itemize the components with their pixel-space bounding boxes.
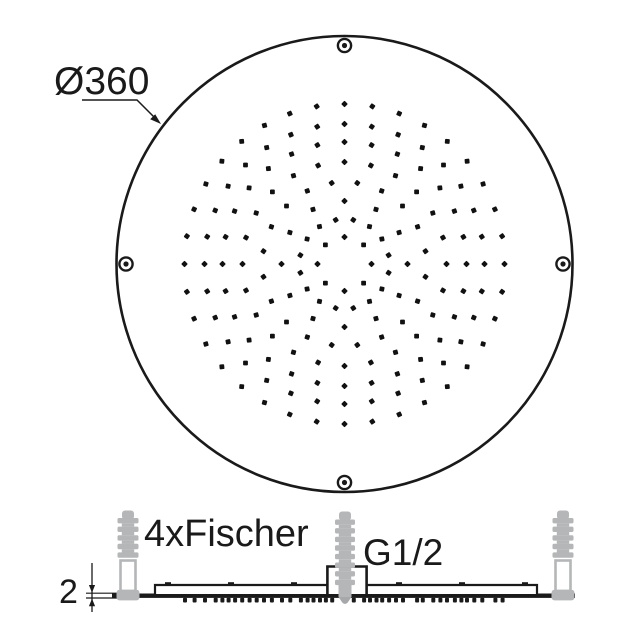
anchor-thread-core	[557, 532, 569, 535]
plate-bump	[165, 582, 171, 585]
side-view: 2 4xFischer G1/2	[59, 511, 575, 613]
nozzle-tooth	[318, 598, 322, 603]
diameter-label: Ø360	[54, 60, 149, 103]
nozzle-dot	[361, 243, 366, 248]
anchor-thread-band	[553, 544, 574, 549]
anchor-thread-band	[118, 518, 139, 523]
nozzle-dot	[264, 145, 270, 151]
nozzle-dot	[361, 281, 366, 286]
nozzle-dot	[239, 384, 244, 389]
nozzle-tooth	[362, 598, 366, 603]
nozzle-tooth	[438, 598, 442, 603]
nozzle-dot	[441, 163, 446, 168]
technical-drawing-canvas: Ø360 2 4xFischer G1/2	[0, 0, 640, 640]
mounting-screw	[338, 39, 351, 52]
nozzle-dot	[225, 339, 231, 345]
anchor-thread-band	[118, 535, 139, 540]
nozzle-dot	[414, 190, 419, 195]
nozzle-tooth	[233, 598, 237, 603]
nozzle-tooth	[453, 598, 457, 603]
dim-arrow-up-icon	[89, 599, 95, 607]
nozzle-tooth	[394, 598, 398, 603]
anchor-thread-core	[557, 549, 569, 552]
nozzle-tooth	[387, 598, 391, 603]
nozzle-dot	[304, 236, 310, 242]
anchor-thread-core	[339, 542, 351, 545]
nozzle-dot	[379, 236, 385, 242]
anchor-thread-band	[553, 552, 574, 557]
nozzle-tooth	[299, 598, 303, 603]
nozzle-dot	[266, 166, 271, 171]
anchor-tip	[339, 512, 351, 521]
nozzle-tooth	[240, 598, 244, 603]
anchor-thread-band	[118, 552, 139, 557]
nozzle-tooth	[375, 598, 379, 603]
nozzle-dot	[445, 384, 450, 389]
nozzle-tooth	[459, 598, 463, 603]
nozzle-dot	[414, 334, 419, 339]
thickness-label: 2	[59, 573, 78, 611]
nozzle-dot	[266, 357, 271, 362]
nozzle-dot	[323, 281, 328, 286]
nozzle-tooth	[306, 598, 310, 603]
nozzle-tooth	[501, 598, 505, 603]
anchor-thread-core	[339, 559, 351, 562]
nozzle-dot	[437, 337, 442, 342]
nozzle-dot	[418, 166, 423, 171]
nozzle-tooth	[280, 598, 284, 603]
nozzle-tooth	[248, 598, 252, 603]
anchor-thread-band	[335, 520, 355, 525]
anchor-thread-core	[122, 549, 134, 552]
anchor-thread-band	[335, 571, 355, 576]
nozzle-tooth	[214, 598, 218, 603]
nozzle-tooth	[262, 598, 266, 603]
plate-bump	[522, 582, 528, 585]
anchor-thread-core	[557, 541, 569, 544]
plate-bump	[459, 582, 465, 585]
nozzle-dot	[441, 361, 446, 366]
plate-bump	[228, 582, 234, 585]
anchor-shaft	[556, 561, 571, 592]
dim-arrow-down-icon	[89, 585, 95, 593]
anchor-thread-band	[118, 544, 139, 549]
anchor-thread-band	[118, 527, 139, 532]
nozzle-tooth	[401, 598, 405, 603]
nozzle-dot	[317, 224, 323, 230]
plate-bump	[396, 582, 402, 585]
nozzle-dot	[243, 361, 248, 366]
anchor-collar	[117, 590, 140, 601]
nozzle-dot	[304, 286, 310, 292]
anchor-thread-band	[335, 545, 355, 550]
nozzle-dot	[317, 299, 323, 305]
nozzle-dot	[418, 357, 423, 362]
nozzle-dot	[400, 204, 405, 209]
mounting-screw	[338, 476, 351, 489]
nozzle-dot	[464, 159, 469, 164]
anchor-thread-core	[122, 541, 134, 544]
nozzle-tooth	[445, 598, 449, 603]
anchor-thread-band	[335, 528, 355, 533]
nozzle-dot	[400, 320, 405, 325]
nozzle-tooth	[368, 598, 372, 603]
nozzle-dot	[246, 337, 251, 342]
mounting-screw	[556, 257, 569, 270]
drawing-svg: Ø360 2 4xFischer G1/2	[0, 0, 640, 640]
nozzle-dot	[458, 339, 464, 345]
anchor-thread-core	[339, 534, 351, 537]
anchor-thread-band	[553, 518, 574, 523]
nozzle-tooth	[193, 598, 197, 603]
anchor-thread-core	[339, 551, 351, 554]
anchor-thread-band	[335, 537, 355, 542]
nozzle-tooth	[330, 598, 334, 603]
nozzle-tooth	[352, 598, 356, 603]
nozzle-tooth	[288, 598, 292, 603]
nozzle-dot	[239, 139, 244, 144]
nozzle-dot	[464, 364, 469, 369]
plate-bump	[291, 582, 297, 585]
nozzle-tooth	[431, 598, 435, 603]
nozzle-dot	[419, 145, 425, 151]
anchor-shaft	[121, 561, 136, 592]
screw-center-dot	[342, 43, 347, 48]
nozzle-dot	[264, 378, 270, 384]
nozzle-dot	[284, 204, 289, 209]
nozzle-dot	[225, 183, 231, 189]
nozzle-dot	[458, 183, 464, 189]
anchor-thread-band	[553, 527, 574, 532]
nozzle-dot	[367, 299, 373, 305]
nozzle-dot	[246, 185, 251, 190]
nozzle-dot	[437, 185, 442, 190]
nozzle-tooth	[380, 598, 384, 603]
nozzle-dot	[219, 364, 224, 369]
anchor-thread-core	[339, 577, 351, 580]
nozzle-dot	[419, 378, 425, 384]
screw-center-dot	[123, 261, 128, 266]
nozzle-tooth	[227, 598, 231, 603]
nozzle-dot	[243, 163, 248, 168]
nozzle-tooth	[203, 598, 207, 603]
nozzle-dot	[367, 224, 373, 230]
nozzle-tooth	[270, 598, 274, 603]
anchor-thread-core	[557, 523, 569, 526]
screw-center-dot	[342, 480, 347, 485]
anchor-thread-core	[122, 532, 134, 535]
nozzle-tooth	[480, 598, 484, 603]
nozzle-tooth	[220, 598, 224, 603]
nozzle-tooth	[183, 598, 187, 603]
nozzle-dot	[270, 334, 275, 339]
diameter-leader-line	[82, 100, 158, 121]
wall-anchor	[117, 511, 140, 601]
screw-center-dot	[560, 261, 565, 266]
nozzle-dot	[284, 320, 289, 325]
mounting-screw	[119, 257, 132, 270]
nozzle-tooth	[472, 598, 476, 603]
anchor-thread-band	[335, 563, 355, 568]
anchor-thread-core	[122, 523, 134, 526]
nozzle-tooth	[465, 598, 469, 603]
nozzle-tooth	[324, 598, 328, 603]
nozzle-tooth	[415, 598, 419, 603]
anchor-thread-band	[553, 535, 574, 540]
wall-anchor	[552, 511, 575, 601]
nozzle-tooth	[493, 598, 497, 603]
top-view: Ø360	[54, 36, 573, 492]
anchor-thread-core	[339, 568, 351, 571]
nozzle-dot	[270, 190, 275, 195]
nozzle-tooth	[312, 598, 316, 603]
anchor-rod-lower	[339, 584, 352, 597]
thread-label: G1/2	[363, 532, 443, 573]
nozzle-dot	[323, 243, 328, 248]
anchor-thread-band	[335, 554, 355, 559]
nozzle-tooth	[421, 598, 425, 603]
anchor-point-tip	[339, 597, 352, 604]
nozzle-tooth	[255, 598, 259, 603]
anchor-thread-core	[339, 525, 351, 528]
anchors-label: 4xFischer	[144, 513, 309, 555]
nozzle-dot	[379, 286, 385, 292]
nozzle-dot	[445, 139, 450, 144]
anchor-collar	[552, 590, 575, 601]
nozzle-dot	[219, 159, 224, 164]
